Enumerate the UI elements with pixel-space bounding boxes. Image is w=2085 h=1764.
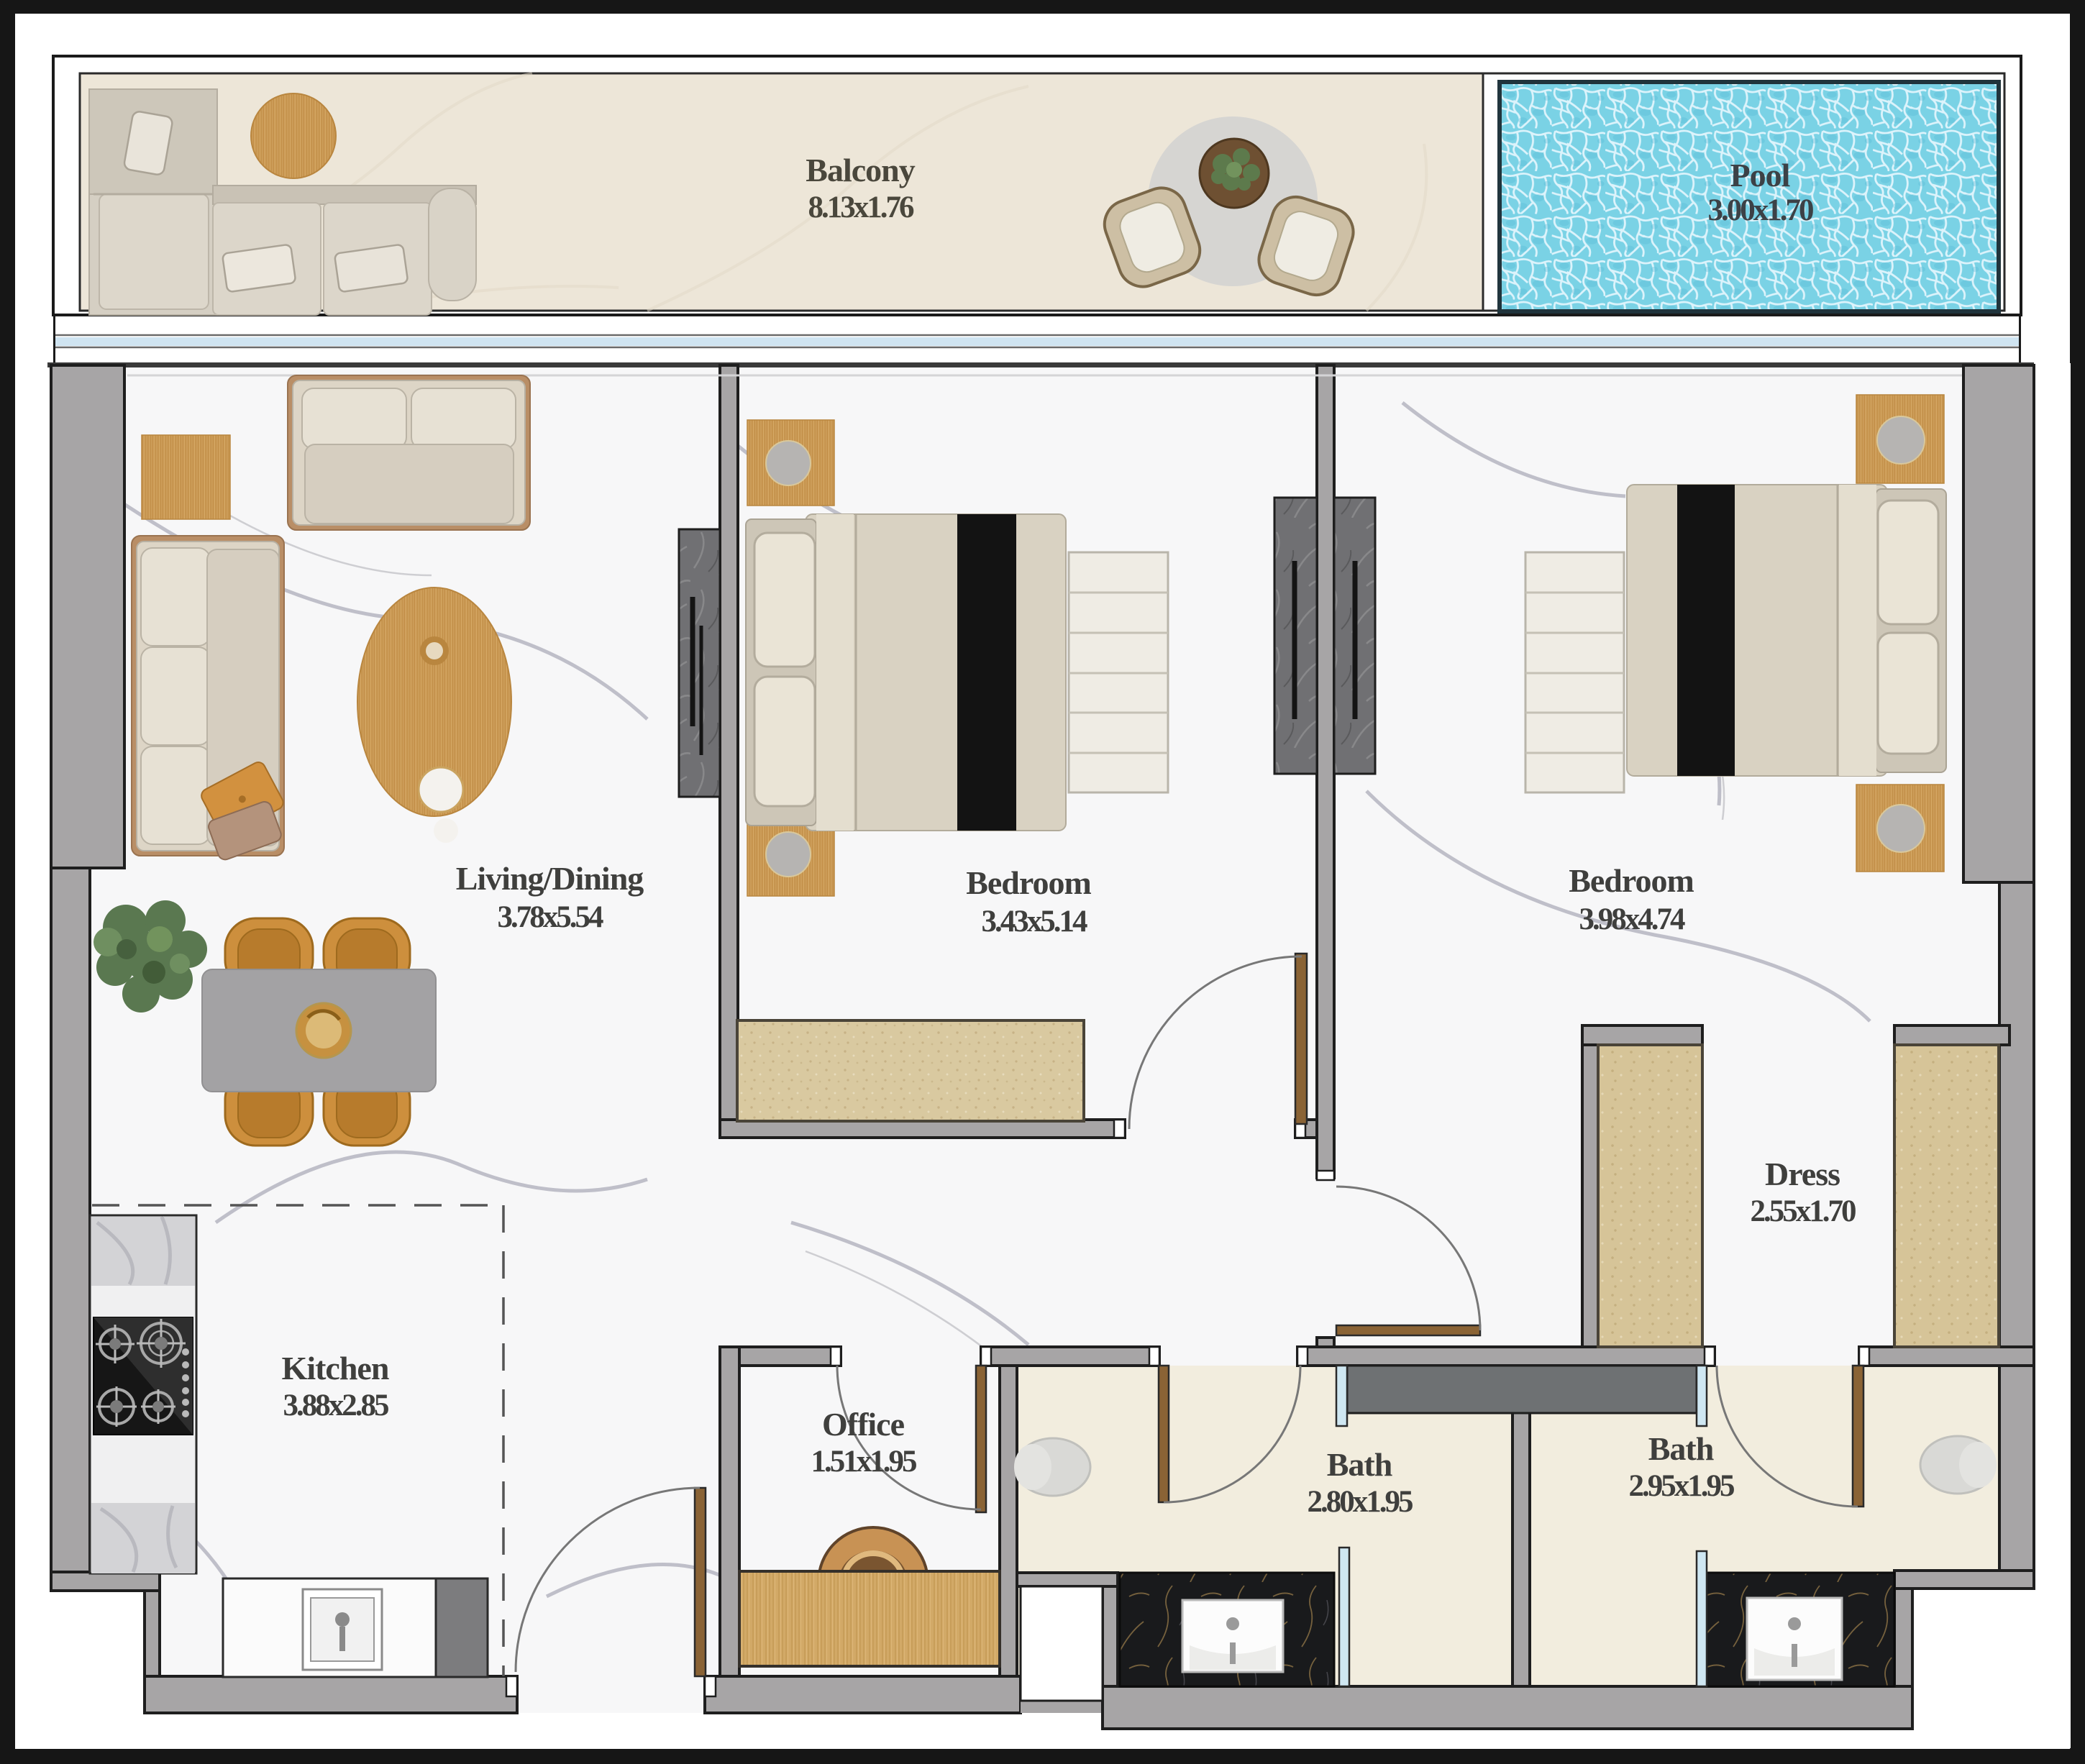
svg-text:Dress: Dress <box>1765 1156 1840 1192</box>
svg-text:2.80x1.95: 2.80x1.95 <box>1308 1485 1413 1519</box>
svg-text:3.98x4.74: 3.98x4.74 <box>1579 902 1686 936</box>
svg-text:3.78x5.54: 3.78x5.54 <box>498 900 604 934</box>
svg-text:Balcony: Balcony <box>806 152 915 188</box>
svg-text:1.51x1.95: 1.51x1.95 <box>811 1445 917 1479</box>
svg-text:Bath: Bath <box>1648 1430 1714 1467</box>
svg-text:Living/Dining: Living/Dining <box>456 860 644 897</box>
svg-text:Office: Office <box>822 1406 905 1443</box>
svg-text:3.43x5.14: 3.43x5.14 <box>982 905 1088 938</box>
svg-text:2.95x1.95: 2.95x1.95 <box>1629 1469 1735 1503</box>
svg-text:3.88x2.85: 3.88x2.85 <box>283 1389 389 1422</box>
svg-text:Bedroom: Bedroom <box>966 864 1091 901</box>
svg-text:8.13x1.76: 8.13x1.76 <box>808 191 915 224</box>
svg-text:Bath: Bath <box>1327 1446 1392 1483</box>
svg-text:Pool: Pool <box>1730 157 1790 193</box>
svg-text:2.55x1.70: 2.55x1.70 <box>1751 1194 1856 1228</box>
svg-text:3.00x1.70: 3.00x1.70 <box>1708 193 1814 227</box>
svg-text:Bedroom: Bedroom <box>1569 862 1694 899</box>
svg-text:Kitchen: Kitchen <box>282 1350 389 1386</box>
